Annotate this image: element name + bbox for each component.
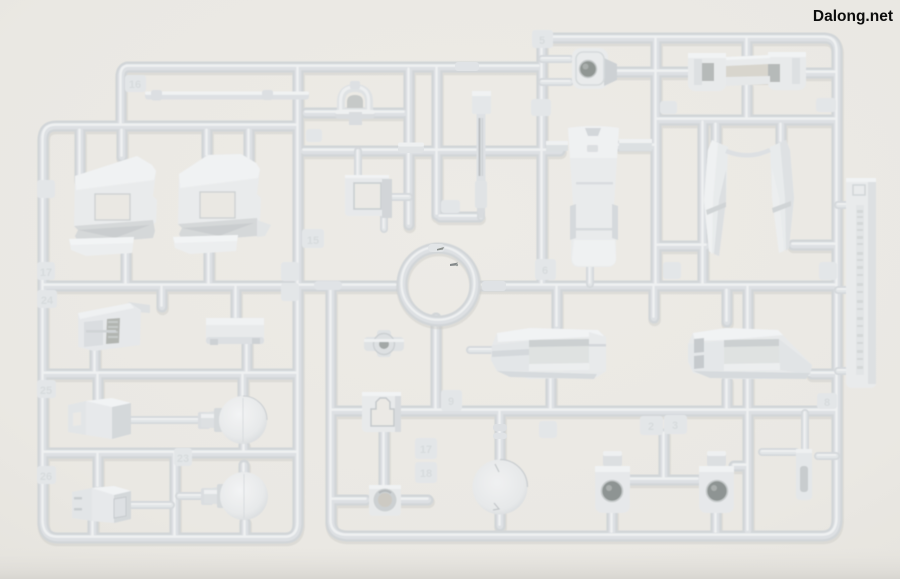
svg-text:5: 5 — [539, 35, 545, 47]
svg-text:Dalong.net: Dalong.net — [813, 8, 893, 25]
svg-text:17: 17 — [420, 444, 432, 456]
svg-text:25: 25 — [40, 385, 52, 397]
svg-text:3: 3 — [672, 420, 678, 432]
svg-text:24: 24 — [41, 295, 54, 307]
svg-text:23: 23 — [177, 453, 189, 465]
svg-text:9: 9 — [448, 396, 454, 408]
svg-text:8: 8 — [824, 397, 830, 409]
svg-text:2: 2 — [648, 421, 654, 433]
svg-text:16: 16 — [129, 79, 141, 91]
svg-text:26: 26 — [40, 471, 52, 483]
svg-text:18: 18 — [420, 468, 432, 480]
svg-text:6: 6 — [542, 265, 548, 277]
svg-text:17: 17 — [40, 267, 52, 279]
svg-text:15: 15 — [307, 235, 319, 247]
